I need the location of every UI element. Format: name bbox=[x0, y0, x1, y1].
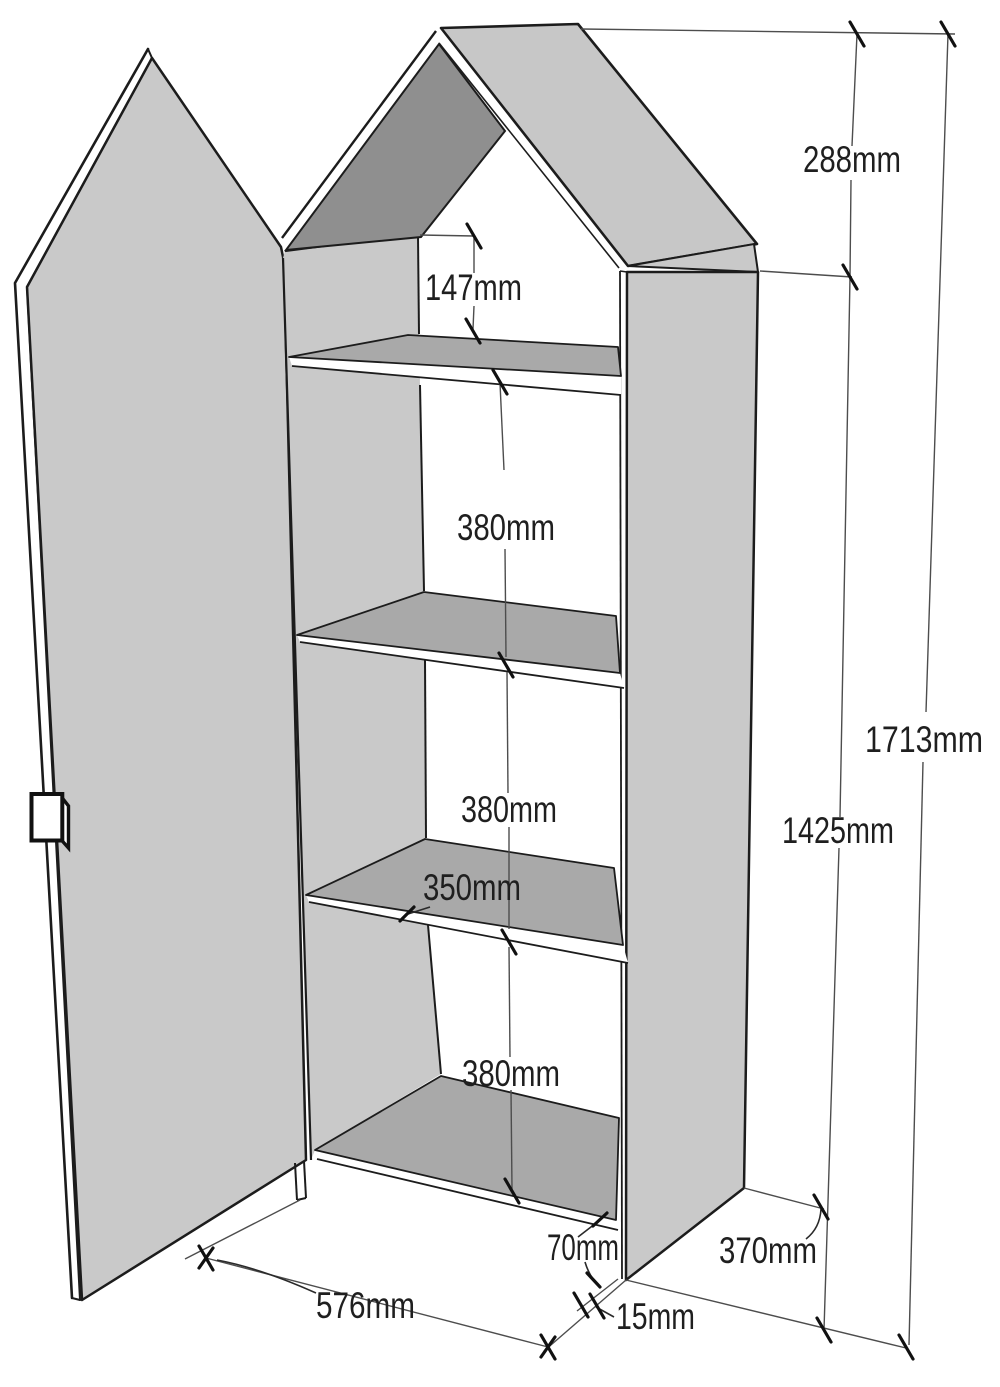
svg-text:576mm: 576mm bbox=[316, 1285, 415, 1326]
svg-text:350mm: 350mm bbox=[423, 867, 521, 908]
svg-text:70mm: 70mm bbox=[547, 1227, 619, 1268]
svg-text:288mm: 288mm bbox=[803, 139, 901, 180]
svg-text:15mm: 15mm bbox=[616, 1296, 695, 1337]
svg-text:1713mm: 1713mm bbox=[865, 719, 983, 760]
svg-text:147mm: 147mm bbox=[425, 267, 522, 308]
svg-text:380mm: 380mm bbox=[457, 507, 555, 548]
svg-text:380mm: 380mm bbox=[462, 1053, 560, 1094]
svg-text:1425mm: 1425mm bbox=[782, 810, 894, 851]
svg-text:380mm: 380mm bbox=[461, 789, 557, 830]
svg-text:370mm: 370mm bbox=[719, 1230, 817, 1271]
